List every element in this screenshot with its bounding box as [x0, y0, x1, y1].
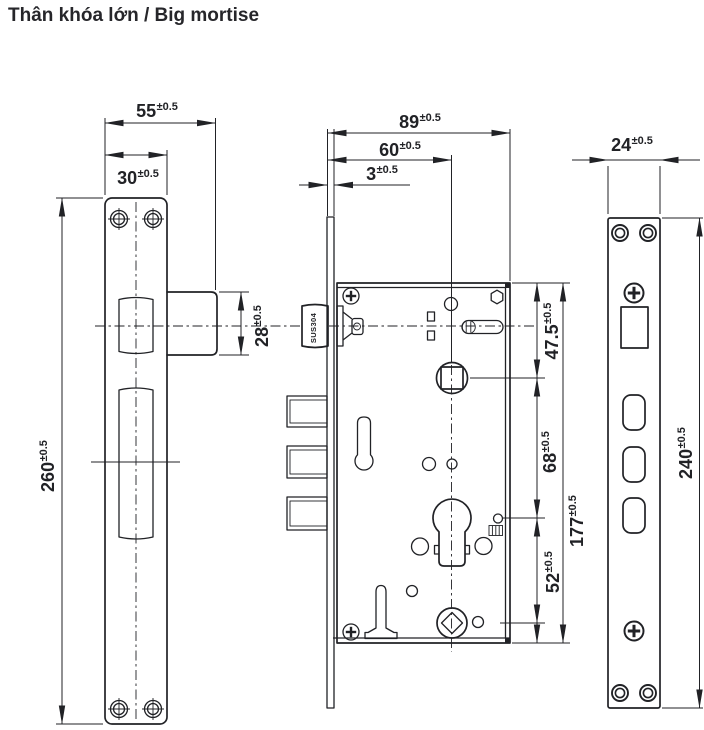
screw-hole-icon [108, 208, 130, 230]
dim-label: 30±0.5 [117, 168, 159, 188]
hole [473, 617, 484, 628]
corner-mark [505, 283, 510, 288]
corner-mark [505, 638, 510, 643]
countersunk-hole-icon [612, 685, 628, 701]
spindle-follower [437, 363, 468, 394]
technical-drawing: Thân khóa lớn / Big mortise 55±0.5 30±0.… [0, 0, 704, 730]
dim-label: 52±0.5 [543, 551, 563, 593]
hole [412, 538, 429, 555]
dim-label: 28±0.5 [252, 305, 272, 347]
dim-label: 260±0.5 [38, 440, 58, 492]
dim-overall-width-55: 55±0.5 [105, 101, 216, 290]
hole [423, 458, 436, 471]
hole [475, 538, 492, 555]
dim-latch-height-28: 28±0.5 [219, 292, 272, 355]
euro-cylinder-hole [433, 499, 471, 566]
case-screw-icon [343, 288, 359, 304]
dim-label: 89±0.5 [399, 112, 441, 132]
hole [494, 514, 503, 523]
deadbolt-blocks [287, 396, 327, 530]
middle-view-lock-body: SUS304 [287, 217, 510, 708]
latch-opening [621, 307, 648, 348]
page-title: Thân khóa lớn / Big mortise [8, 5, 259, 26]
dim-chain-right: 47.5±0.5 68±0.5 52±0.5 177±0.5 [470, 283, 587, 643]
dim-strike-height-240: 240±0.5 [662, 218, 703, 708]
dim-label: 60±0.5 [379, 140, 421, 160]
dim-faceplate-thickness-3: 3±0.5 [299, 164, 410, 185]
countersunk-hole-icon [612, 225, 628, 241]
material-label: SUS304 [309, 312, 318, 343]
latch-protrusion [167, 292, 217, 355]
dim-plate-width-30: 30±0.5 [105, 150, 167, 195]
lock-case-outline [337, 283, 510, 643]
countersunk-hole-icon [640, 225, 656, 241]
countersunk-hole-icon [640, 685, 656, 701]
screw-hole-icon [108, 698, 130, 720]
dim-body-depth-89: 89±0.5 [328, 112, 511, 281]
latch-reverse-slot [462, 321, 503, 334]
plate-screw-icon [625, 622, 644, 641]
dim-label: 55±0.5 [136, 101, 178, 121]
dim-label: 177±0.5 [567, 495, 587, 547]
dim-label: 47.5±0.5 [542, 303, 562, 360]
vent-icon [489, 526, 503, 536]
dim-label: 240±0.5 [676, 427, 696, 479]
dim-label: 24±0.5 [611, 135, 653, 155]
slot-square [428, 331, 435, 340]
stop-lever [365, 586, 397, 639]
plate-screw-icon [625, 284, 644, 303]
right-view-strike-plate [608, 218, 660, 708]
dim-plate-height-260: 260±0.5 [38, 198, 103, 724]
bolt-opening [623, 395, 645, 430]
dim-label: 3±0.5 [366, 164, 398, 184]
screw-hole-icon [142, 208, 164, 230]
slot-square [428, 312, 435, 321]
bolt-opening [623, 447, 645, 482]
screw-hole-icon [142, 698, 164, 720]
hole [447, 459, 457, 469]
dim-label: 68±0.5 [540, 431, 560, 473]
left-view-faceplate-front [105, 198, 217, 724]
bolt-opening [623, 498, 645, 533]
thumbturn-follower [437, 608, 467, 638]
keyhole-slot [355, 417, 373, 470]
faceplate-side [327, 217, 334, 708]
hex-nut-icon [491, 290, 503, 304]
dim-strike-width-24: 24±0.5 [572, 135, 700, 214]
drawing-page: Thân khóa lớn / Big mortise 55±0.5 30±0.… [0, 0, 704, 730]
hole [407, 586, 418, 597]
